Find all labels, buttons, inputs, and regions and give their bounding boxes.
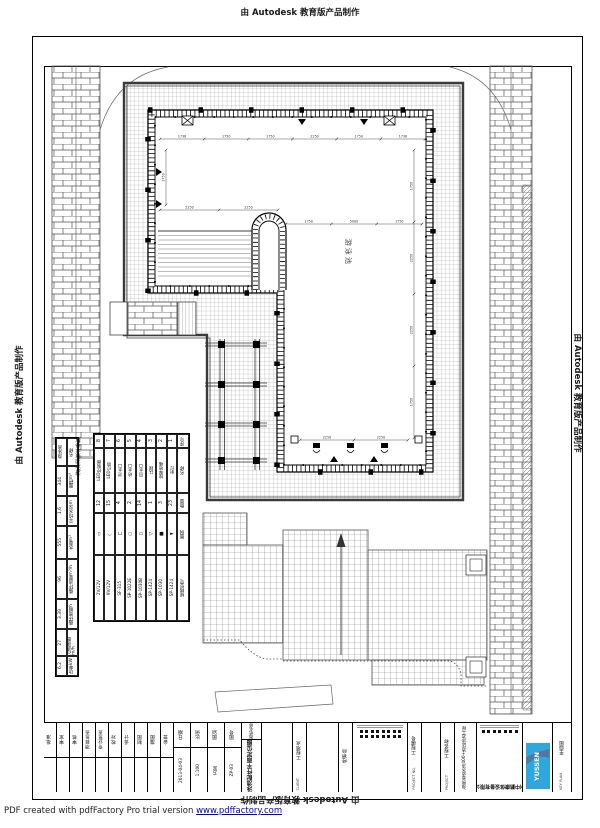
titleblock-cell-sig2: 经销商 [339, 723, 353, 792]
titleblock-cell-sig2: 工程编号PROJECT NO. [408, 723, 422, 792]
titleblock-sig-text: 设计 [125, 735, 130, 745]
equipment-cell: 5 [125, 434, 135, 448]
equipment-cell-text: ► [170, 532, 174, 537]
param-cell-text: 6.2 [59, 662, 64, 669]
equipment-cell-text: 2 [128, 501, 133, 504]
equipment-item-column: 5给水口2○SP-1022E [125, 434, 135, 621]
dim-label: 1738 [178, 135, 186, 139]
param-cell: 344 [56, 466, 67, 496]
titleblock-title-label-text: 图纸名称 [249, 723, 253, 739]
keyplan-en: KEY PLAN [560, 773, 564, 790]
equipment-cell-text: LED灯带 [107, 462, 111, 479]
param-cell-text: 游泳池 [59, 445, 64, 459]
lower-paving [203, 513, 487, 685]
dim-label: 1750 [266, 135, 274, 139]
titleblock-cell-sig: 专业负责 [96, 723, 109, 792]
stamp-dash [482, 730, 485, 733]
dealer-contact-line [357, 727, 403, 728]
equipment-cell: 2 [125, 493, 135, 513]
param-cell-text: 555 [59, 538, 64, 547]
titleblock-sig-label: 专业负责 [96, 723, 108, 758]
equipment-cell: 7 [104, 434, 114, 448]
equipment-header-text: 名称 [181, 466, 186, 475]
equipment-cell: 1 [167, 434, 177, 448]
titleblock-cell-sig: 制图 [135, 723, 148, 792]
equipment-cell-text: 7 [107, 439, 112, 442]
company-contact-line [480, 725, 518, 726]
equipment-cell: LED灯带 [104, 448, 114, 493]
pdffactory-link[interactable]: www.pdffactory.com [196, 806, 282, 816]
param-row: 6.2功率kW [56, 656, 78, 676]
param-cell: 27 [56, 629, 67, 656]
equipment-cell: ▷ [146, 513, 156, 555]
titleblock-kv-key: 日期 [174, 723, 190, 748]
titleblock-cell-sig: 项目负责 [83, 723, 96, 792]
equipment-cell: ▭ [136, 513, 146, 555]
equipment-cell: 回水口 [136, 448, 146, 493]
stamp-dash [387, 730, 390, 733]
param-cell: 3.39 [56, 599, 67, 629]
pool-body [148, 110, 433, 472]
titleblock-cell-stamp [353, 723, 408, 792]
title-block: 批准审定审核项目负责专业负责校对设计制图描图会签日期2013-04-03比例1:… [44, 722, 572, 792]
project-name: 海南省清水湾400+酒店泳池工程 [455, 723, 476, 792]
dim-label: 2250 [410, 326, 414, 334]
equipment-cell: 4 [115, 493, 125, 513]
equipment-cell: 给水口 [125, 448, 135, 493]
equipment-cell: SP-1424 [146, 555, 156, 621]
stamp-dash [515, 730, 518, 733]
equipment-cell: ◡ [104, 513, 114, 555]
equipment-cell: ○ [125, 513, 135, 555]
stamp-dash [393, 735, 396, 738]
equipment-header-cell: 名称 [177, 448, 189, 493]
titleblock-cell-blank [307, 723, 340, 792]
stamp-dash [487, 730, 490, 733]
equipment-cell: SP-1030B [136, 555, 146, 621]
titleblock-kv-value-text: 方案 [214, 766, 219, 775]
titleblock-cell-sig: 描图 [148, 723, 161, 792]
equipment-cell-text: 3 [149, 439, 154, 442]
titleblock-kv-value-text: 1:100 [197, 764, 202, 776]
brick-band-left [52, 66, 100, 458]
dealer-stamp-row [360, 730, 402, 733]
pool-name-char: 池 [343, 256, 352, 263]
param-row: 1.6平均水深m [56, 496, 78, 526]
titleblock-kv-value: ZP-03 [225, 748, 241, 792]
equipment-item-column: 3扶梯1▷SP-1424 [146, 434, 156, 621]
titleblock-kv-key-text: 图别 [213, 730, 218, 740]
autodesk-stamp-left: 由 Autodesk 教育版产品制作 [13, 345, 25, 464]
titleblock-cell-company: 广州中鹏康体设备有限公司 [477, 723, 523, 792]
titleblock-sig-label: 设计 [122, 723, 134, 758]
autodesk-stamp-bottom: 由 Autodesk 教育版产品制作 [0, 794, 600, 806]
titleblock-cell-title: 图纸名称泳池配件平面定位图TITLE [242, 723, 262, 792]
equipment-header-text: 图例 [181, 530, 186, 539]
param-cell: 循环周期h [67, 599, 78, 629]
titleblock-sig-label: 会签 [161, 723, 173, 758]
titleblock-kv-value: 2013-04-03 [174, 748, 190, 792]
equipment-cell: 3 [156, 493, 166, 513]
equipment-cell-text: 扶梯 [149, 466, 153, 474]
param-row: 游泳池名称 [56, 438, 78, 466]
equipment-cell-text: 15 [107, 500, 112, 506]
equipment-cell-text: 3 [159, 501, 164, 504]
equipment-cell: 1 [146, 493, 156, 513]
equipment-cell-text: 2 [159, 439, 164, 442]
equipment-cell: ⊔ [115, 513, 125, 555]
param-row: 344面积m² [56, 466, 78, 496]
titleblock-sig-text: 审定 [60, 735, 65, 745]
param-cell: 6.2 [56, 656, 67, 676]
titleblock-cell-kv: 图号ZP-03 [225, 723, 242, 792]
equipment-cell: ■ [156, 513, 166, 555]
yussen-logo: YUSSEN [526, 743, 550, 789]
equipment-cell: ► [167, 513, 177, 555]
stamp-dash [382, 735, 385, 738]
param-cell: 过滤速度m/h [67, 629, 78, 656]
stamp-dash [504, 730, 507, 733]
equipment-item-column: 7LED灯带15◡9V/12V [104, 434, 114, 621]
dealer-contact-line [357, 725, 403, 726]
titleblock-cell-sig: 审定 [57, 723, 70, 792]
equipment-cell-text: SP-1424 [170, 579, 174, 596]
equipment-cell-text: 射灯 [170, 466, 174, 474]
param-row: 96循环流量m³/h [56, 559, 78, 599]
equipment-cell: 23 [167, 493, 177, 513]
stamp-dash [360, 730, 363, 733]
titleblock-cell-kv: 图别方案 [208, 723, 225, 792]
pool-parameters-title: 游泳池技术参数 [77, 437, 83, 476]
deck-edge-features [110, 302, 196, 335]
dim-label: 2250 [410, 254, 414, 262]
pdf-footer-text: PDF created with pdfFactory Pro trial ve… [4, 806, 196, 816]
dealer-stamp-row [360, 735, 402, 738]
titleblock-sig-label: 校对 [109, 723, 121, 758]
titleblock-sig-label: 项目负责 [83, 723, 95, 758]
titleblock-cell-kv: 比例1:100 [191, 723, 208, 792]
dim-label: 1750 [395, 220, 403, 224]
dim-label: 5000 [350, 220, 358, 224]
param-cell-text: 过滤速度m/h [68, 630, 77, 655]
pool-name-char: 泳 [343, 248, 352, 255]
titleblock-field-en: PROJECT NO. [413, 767, 417, 790]
equipment-header-text: 数量 [181, 499, 186, 508]
keyplan-label: 平面图 [553, 723, 571, 773]
dim-label: 1750 [410, 398, 414, 406]
titleblock-kv-key: 比例 [191, 723, 207, 748]
param-cell: 游泳池 [56, 438, 67, 466]
equipment-cell-text: ▯ [98, 532, 101, 537]
titleblock-field-en: CLIENT [297, 778, 301, 790]
param-cell-text: 344 [59, 477, 64, 486]
equipment-header-cell: 图例 [177, 513, 189, 555]
titleblock-field-label-text: 经销商 [343, 749, 348, 763]
param-cell: 555 [56, 526, 67, 559]
titleblock-sig-text: 描图 [151, 735, 156, 745]
equipment-cell: ▯ [94, 513, 104, 555]
equipment-cell-text: ○ [128, 532, 132, 537]
titleblock-cell-sig2: 工程地点CLIENT [293, 723, 307, 792]
param-cell-text: 循环流量m³/h [70, 565, 75, 594]
equipment-item-column: 8LED控制器12▯2V/12V [94, 434, 104, 621]
equipment-cell-text: 5 [128, 439, 133, 442]
dim-label: 1750 [355, 135, 363, 139]
equipment-cell: 12 [94, 493, 104, 513]
param-row: 555水量m³ [56, 526, 78, 559]
equipment-cell-text: 回水口 [139, 464, 143, 477]
param-cell-text: 1.6 [59, 507, 64, 514]
titleblock-sig-text: 会签 [164, 735, 169, 745]
dim-label: 2250 [244, 206, 252, 210]
equipment-cell: SP-1022E [125, 555, 135, 621]
stamp-dash [376, 730, 379, 733]
param-cell-text: 27 [59, 640, 64, 646]
equipment-cell: 4 [136, 434, 146, 448]
equipment-cell-text: ◡ [107, 532, 111, 537]
equipment-cell-text: ▷ [149, 532, 153, 537]
titleblock-sig-text: 制图 [138, 735, 143, 745]
titleblock-field-label-text: 工程编号 [412, 736, 417, 755]
pool-peninsula-wall [252, 213, 286, 290]
parcel-outline [215, 685, 333, 712]
equipment-cell-text: 6 [117, 439, 122, 442]
logo-text: YUSSEN [534, 752, 541, 781]
titleblock-cell-keyplan: 平面图KEY PLAN [553, 723, 572, 792]
param-cell-text: 面积m² [70, 473, 75, 488]
site-plan-graphics: 1738175017502250175017382250225017505000… [0, 0, 600, 828]
equipment-cell: 扶梯 [146, 448, 156, 493]
equipment-cell-text: 23 [169, 500, 174, 506]
titleblock-field-label: 工程编号 [408, 723, 421, 767]
titleblock-sig-text: 专业负责 [99, 730, 104, 749]
pool-name-char: 游 [343, 239, 352, 246]
param-row: 27过滤速度m/h [56, 629, 78, 656]
dim-label: 1750 [410, 182, 414, 190]
equipment-cell: 9V/12V [104, 555, 114, 621]
titleblock-field-label: 工程地点 [293, 723, 306, 778]
titleblock-kv-key-text: 日期 [179, 730, 184, 740]
equipment-cell: 8 [94, 434, 104, 448]
equipment-header-text: 规格型号 [181, 579, 186, 597]
stamp-dash [382, 730, 385, 733]
param-cell: 平均水深m [67, 496, 78, 526]
titleblock-kv-key: 图别 [208, 723, 224, 748]
titleblock-field-label: 工程名称 [441, 723, 454, 775]
drawing-title: 泳池配件平面定位图 [242, 740, 261, 792]
dim-label: 1750 [304, 220, 312, 224]
equipment-cell: 泄水口 [115, 448, 125, 493]
param-cell: 96 [56, 559, 67, 599]
param-cell-text: 功率kW [70, 658, 75, 674]
equipment-cell-text: ⊔ [118, 532, 122, 537]
equipment-cell-text: 4 [138, 439, 143, 442]
stamp-dash [371, 735, 374, 738]
titleblock-field-label-text: 工程名称 [445, 739, 450, 758]
company-name: 广州中鹏康体设备有限公司 [477, 783, 523, 790]
equipment-item-column: 1射灯23►SP-1424 [167, 434, 177, 621]
dim-label: 2250 [185, 206, 193, 210]
dim-label: 2250 [377, 436, 385, 440]
brick-band-right [490, 66, 532, 714]
project-name-text: 海南省清水湾400+酒店泳池工程 [463, 726, 468, 789]
titleblock-cell-logo: YUSSEN [523, 723, 553, 792]
titleblock-cell-sig: 审核 [70, 723, 83, 792]
titleblock-cell-sig: 批准 [44, 723, 57, 792]
param-cell-text: 平均水深m [70, 500, 75, 522]
param-row: 3.39循环周期h [56, 599, 78, 629]
titleblock-cell-sig2: 工程名称PROJECT [441, 723, 455, 792]
stamp-dash [398, 730, 401, 733]
equipment-cell-text: 14 [138, 500, 143, 506]
equipment-cell-text: SP-1424 [149, 579, 153, 596]
company-stamp-row [482, 730, 518, 733]
equipment-header-column: 序号名称数量图例规格型号 [177, 434, 189, 621]
equipment-cell: 15 [104, 493, 114, 513]
equipment-cell-text: 1 [149, 501, 154, 504]
titleblock-cell-blank [262, 723, 293, 792]
equipment-header-cell: 数量 [177, 493, 189, 513]
equipment-schedule-table: 8LED控制器12▯2V/12V7LED灯带15◡9V/12V6泄水口4⊔SF-… [93, 433, 190, 622]
equipment-cell-text: 给水口 [128, 464, 132, 477]
equipment-cell: SP-1030 [156, 555, 166, 621]
titleblock-sig-label: 审核 [70, 723, 82, 758]
param-cell: 循环流量m³/h [67, 559, 78, 599]
titleblock-cell-vtext2: 海南省清水湾400+酒店泳池工程 [455, 723, 477, 792]
param-cell: 1.6 [56, 496, 67, 526]
equipment-cell-text: SP-1022E [128, 578, 132, 598]
titleblock-sig-text: 批准 [47, 735, 52, 745]
equipment-cell: 按摩喷嘴 [156, 448, 166, 493]
titleblock-cell-blank [422, 723, 441, 792]
autodesk-stamp-top: 由 Autodesk 教育版产品制作 [0, 6, 600, 18]
titleblock-sig-label: 描图 [148, 723, 160, 758]
drawing-title-text: 泳池配件平面定位图 [248, 740, 254, 792]
stamp-dash [509, 730, 512, 733]
equipment-cell-text: 按摩喷嘴 [159, 462, 163, 479]
equipment-cell-text: 1 [169, 439, 174, 442]
equipment-item-column: 2按摩喷嘴3■SP-1030 [156, 434, 166, 621]
equipment-cell-text: 4 [117, 501, 122, 504]
equipment-cell-text: 8 [97, 439, 102, 442]
stamp-dash [387, 735, 390, 738]
dim-label: 1738 [399, 135, 407, 139]
stamp-dash [371, 730, 374, 733]
dim-label: 1750 [162, 173, 166, 181]
dim-label: 1750 [222, 135, 230, 139]
company-contact-line [480, 727, 518, 728]
equipment-cell-text: 12 [97, 500, 102, 506]
equipment-cell: LED控制器 [94, 448, 104, 493]
titleblock-field-label-text: 工程地点 [297, 741, 302, 760]
param-cell-text: 循环周期h [70, 604, 75, 625]
titleblock-cell-sig: 会签 [161, 723, 174, 792]
equipment-cell-text: 9V/12V [107, 580, 111, 595]
param-cell-text: 水量m³ [70, 535, 75, 550]
titleblock-sig-label: 审定 [57, 723, 69, 758]
dim-label: 2250 [323, 436, 331, 440]
param-cell-text: 3.39 [59, 609, 64, 619]
titleblock-cell-kv: 日期2013-04-03 [174, 723, 191, 792]
equipment-cell-text: 泄水口 [118, 464, 122, 477]
titleblock-kv-key-text: 比例 [196, 730, 201, 740]
keyplan-label-text: 平面图 [560, 741, 565, 755]
equipment-header-text: 序号 [181, 437, 186, 446]
equipment-cell-text: LED控制器 [97, 460, 101, 481]
equipment-cell-text: ▭ [138, 532, 143, 537]
equipment-cell: 2 [156, 434, 166, 448]
autodesk-stamp-right: 由 Autodesk 教育版产品制作 [572, 333, 584, 452]
drawing-sheet: 由 Autodesk 教育版产品制作 由 Autodesk 教育版产品制作 由 … [0, 0, 600, 828]
stamp-dash [376, 735, 379, 738]
param-cell-text: 96 [59, 576, 64, 582]
equipment-cell-text: 2V/12V [97, 580, 101, 595]
param-cell-text: 名称 [70, 448, 75, 457]
titleblock-field-label: 经销商 [339, 723, 352, 790]
equipment-cell-text: SP-1030B [139, 578, 143, 598]
stamp-dash [360, 735, 363, 738]
equipment-cell: 2V/12V [94, 555, 104, 621]
equipment-cell: SP-1424 [167, 555, 177, 621]
titleblock-sig-text: 审核 [73, 735, 78, 745]
equipment-cell-text: ■ [159, 532, 164, 537]
equipment-item-column: 4回水口14▭SP-1030B [136, 434, 146, 621]
stamp-dash [493, 730, 496, 733]
equipment-cell: 6 [115, 434, 125, 448]
titleblock-kv-value: 1:100 [191, 748, 207, 792]
titleblock-kv-value-text: 2013-04-03 [180, 758, 185, 783]
titleblock-sig-label: 批准 [44, 723, 56, 758]
titleblock-kv-value-text: ZP-03 [231, 764, 236, 776]
titleblock-kv-key: 图号 [225, 723, 241, 748]
titleblock-title-label: 图纸名称 [242, 723, 261, 740]
equipment-cell: 14 [136, 493, 146, 513]
titleblock-kv-key-text: 图号 [230, 730, 235, 740]
param-cell: 功率kW [67, 656, 78, 676]
equipment-cell-text: SF-315 [118, 581, 122, 596]
equipment-header-cell: 规格型号 [177, 555, 189, 621]
equipment-item-column: 6泄水口4⊔SF-315 [115, 434, 125, 621]
titleblock-sig-label: 制图 [135, 723, 147, 758]
pool-name-label: 游泳池 [344, 238, 351, 264]
titleblock-sig-text: 项目负责 [86, 730, 91, 749]
pdf-footer: PDF created with pdfFactory Pro trial ve… [4, 806, 282, 816]
stamp-dash [498, 730, 501, 733]
stamp-dash [393, 730, 396, 733]
titleblock-field-en: PROJECT [446, 775, 450, 790]
param-cell: 水量m³ [67, 526, 78, 559]
equipment-cell: 射灯 [167, 448, 177, 493]
stamp-dash [365, 735, 368, 738]
dim-label: 2250 [310, 135, 318, 139]
titleblock-cell-sig: 校对 [109, 723, 122, 792]
equipment-header-cell: 序号 [177, 434, 189, 448]
equipment-cell: 3 [146, 434, 156, 448]
stamp-dash [365, 730, 368, 733]
equipment-cell: SF-315 [115, 555, 125, 621]
equipment-cell-text: SP-1030 [159, 579, 163, 596]
titleblock-sig-text: 校对 [112, 735, 117, 745]
stamp-dash [398, 735, 401, 738]
titleblock-cell-sig: 设计 [122, 723, 135, 792]
titleblock-kv-value: 方案 [208, 748, 224, 792]
